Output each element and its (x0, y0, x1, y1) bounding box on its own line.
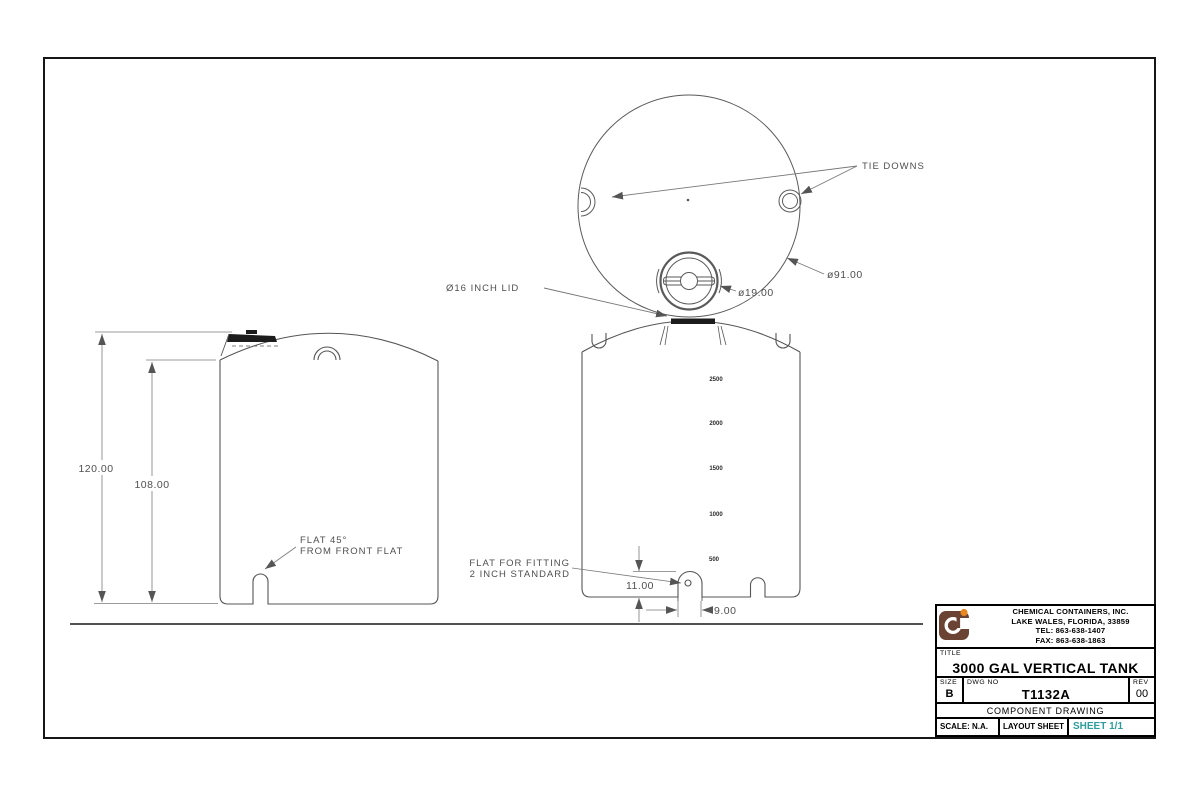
fitting-note-line2: 2 INCH STANDARD (470, 569, 570, 580)
company-address: LAKE WALES, FLORIDA, 33859 (991, 617, 1150, 626)
side-lid-neck-ticks (660, 326, 726, 345)
top-view (578, 95, 801, 317)
fitting-height-dim: 11.00 (626, 580, 654, 592)
title-label: TITLE (940, 650, 961, 657)
gallon-marker: 2500 (709, 377, 723, 383)
center-mark (687, 199, 690, 202)
lid-diameter-label: ø19.00 (738, 287, 774, 299)
footer-row: SCALE: N.A. LAYOUT SHEET SHEET 1/1 (937, 719, 1154, 735)
fitting-note-line1: FLAT FOR FITTING (469, 558, 570, 569)
front-view (220, 330, 438, 604)
company-fax: FAX: 863-638-1863 (991, 636, 1150, 645)
title-row: TITLE 3000 GAL VERTICAL TANK (937, 649, 1154, 678)
overall-height-dim: 120.00 (78, 463, 113, 475)
rev-label: REV (1133, 679, 1148, 686)
side-lid-fill (671, 319, 715, 325)
flat-note-line2: FROM FRONT FLAT (300, 546, 403, 557)
number-row: SIZE B DWG NO T1132A REV 00 (937, 678, 1154, 704)
dwg-no-value: T1132A (964, 687, 1128, 702)
side-view (582, 319, 800, 602)
size-cell: SIZE B (937, 678, 964, 702)
lid-size-label: Ø16 INCH LID (446, 283, 519, 294)
size-value: B (937, 688, 962, 700)
front-dimensions (94, 332, 296, 604)
dwg-no-label: DWG NO (967, 679, 999, 686)
rev-cell: REV 00 (1128, 678, 1154, 702)
front-lid-fill (227, 334, 277, 342)
gallon-marker: 500 (709, 557, 720, 563)
top-view-leaders (544, 166, 857, 316)
dwg-no-cell: DWG NO T1132A (964, 678, 1128, 702)
company-row: CHEMICAL CONTAINERS, INC. LAKE WALES, FL… (937, 606, 1154, 649)
tie-down-right (779, 190, 801, 212)
drawing-sheet: TIE DOWNS ø91.00 ø19.00 Ø16 INCH LID 120… (0, 0, 1200, 798)
fitting-offset-dim: 9.00 (714, 605, 736, 617)
sheet-number: SHEET 1/1 (1069, 719, 1154, 735)
flat-note-line1: FLAT 45° (300, 535, 347, 546)
size-label: SIZE (940, 679, 957, 686)
tank-front-outline (220, 360, 438, 604)
rev-value: 00 (1130, 688, 1154, 700)
gallon-marker: 1000 (709, 512, 723, 518)
tie-downs-label: TIE DOWNS (862, 161, 925, 172)
front-lid-cap (246, 330, 257, 334)
layout-sheet-label: LAYOUT SHEET (1000, 719, 1069, 735)
front-tiedown-arc-inner (318, 351, 336, 360)
lid-top-view (657, 253, 722, 310)
title-block: CHEMICAL CONTAINERS, INC. LAKE WALES, FL… (935, 604, 1156, 737)
tank-side-dome (582, 321, 800, 352)
fitting-hole (685, 580, 691, 586)
tie-down-left (581, 188, 595, 216)
cci-logo-icon (937, 606, 977, 642)
front-lid-slant (221, 334, 229, 356)
company-info: CHEMICAL CONTAINERS, INC. LAKE WALES, FL… (991, 607, 1154, 645)
gallon-marker: 2000 (709, 421, 723, 427)
gallon-graduations: 2500 2000 1500 1000 500 (709, 377, 723, 563)
gallon-marker: 1500 (709, 466, 723, 472)
outer-diameter-label: ø91.00 (827, 269, 863, 281)
shoulder-height-dim: 108.00 (134, 479, 169, 491)
scale-value: SCALE: N.A. (937, 719, 1000, 735)
company-name: CHEMICAL CONTAINERS, INC. (991, 607, 1150, 616)
tank-side-outline (582, 352, 800, 597)
drawing-type: COMPONENT DRAWING (937, 704, 1154, 719)
drawing-title: 3000 GAL VERTICAL TANK (937, 660, 1154, 676)
company-tel: TEL: 863-638-1407 (991, 626, 1150, 635)
